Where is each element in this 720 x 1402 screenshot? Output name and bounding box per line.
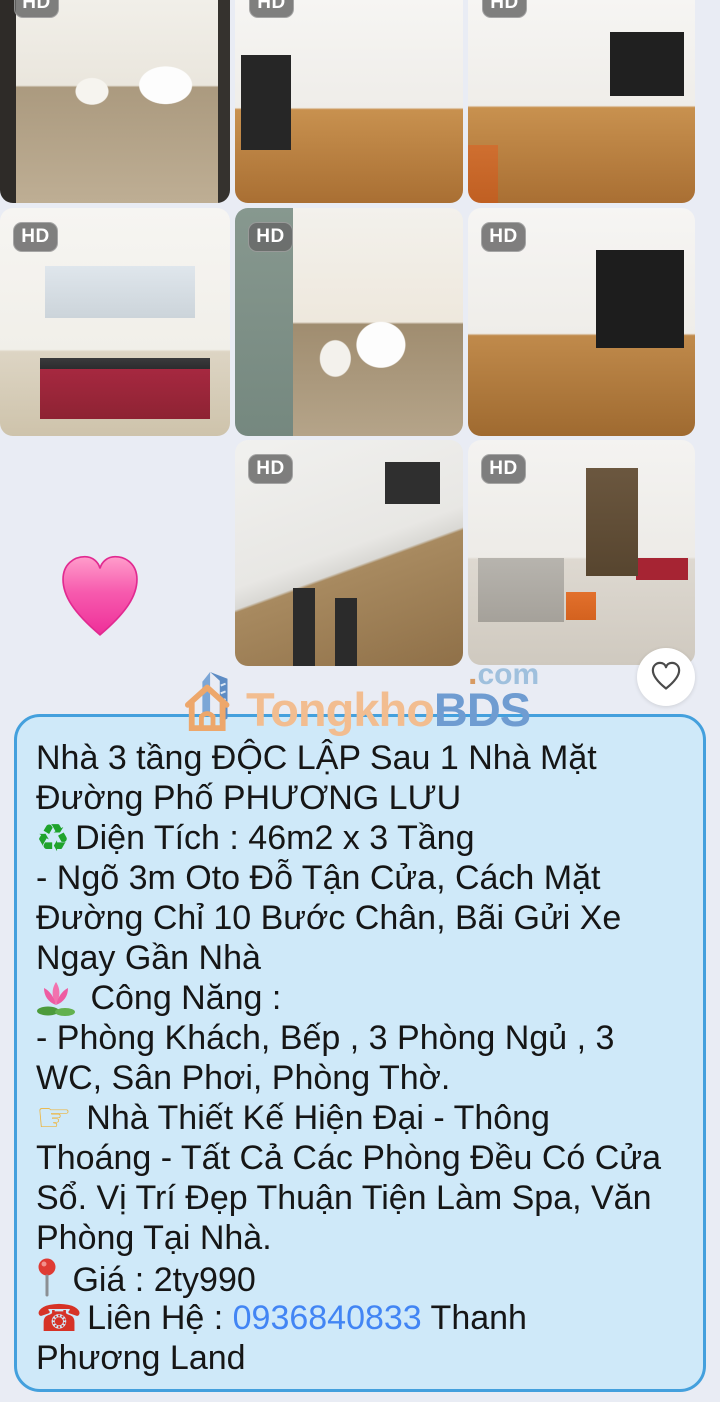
hd-badge: HD: [248, 454, 293, 484]
listing-line-2: Đường Phố PHƯƠNG LƯU: [36, 778, 695, 818]
listing-line-15: ☎Liên Hệ : 0936840833 Thanh: [36, 1298, 695, 1338]
logo-tongkho: Tongkho: [246, 683, 434, 736]
house-logo-icon: [184, 668, 242, 741]
text-segment: Sổ. Vị Trí Đẹp Thuận Tiện Làm Spa, Văn: [36, 1179, 652, 1217]
listing-line-12: Sổ. Vị Trí Đẹp Thuận Tiện Làm Spa, Văn: [36, 1178, 695, 1218]
logo-tld: .com: [468, 654, 539, 693]
logo-tld-com: com: [477, 658, 539, 691]
hd-badge: HD: [249, 0, 294, 18]
photo-living-room[interactable]: HD: [468, 440, 695, 665]
photo-bathroom-1[interactable]: HD: [0, 0, 230, 203]
text-segment: Nhà Thiết Kế Hiện Đại - Thông: [77, 1099, 550, 1137]
hd-badge: HD: [13, 222, 58, 252]
hd-badge: HD: [248, 222, 293, 252]
photo-bedroom-3[interactable]: HD: [468, 208, 695, 436]
photo-kitchen[interactable]: HD: [0, 208, 230, 436]
telephone-emoji: ☎: [36, 1299, 82, 1339]
point-emoji: ☞: [36, 1098, 72, 1138]
text-segment: Công Năng :: [81, 979, 281, 1017]
listing-line-6: Ngay Gần Nhà: [36, 938, 695, 978]
text-segment: Phương Land: [36, 1339, 246, 1377]
hd-badge: HD: [481, 454, 526, 484]
listing-line-10: ☞ Nhà Thiết Kế Hiện Đại - Thông: [36, 1098, 695, 1138]
text-segment: Phòng Tại Nhà.: [36, 1219, 272, 1257]
listing-line-9: WC, Sân Phơi, Phòng Thờ.: [36, 1058, 695, 1098]
listing-line-13: Phòng Tại Nhà.: [36, 1218, 695, 1258]
pink-heart-emoji: [58, 550, 142, 644]
text-segment: Đường Phố PHƯƠNG LƯU: [36, 779, 461, 817]
text-segment: WC, Sân Phơi, Phòng Thờ.: [36, 1059, 450, 1097]
photo-bathroom-2[interactable]: HD: [235, 208, 463, 436]
phone-number-link[interactable]: 0936840833: [233, 1299, 422, 1337]
listing-description-box: Nhà 3 tầng ĐỘC LẬP Sau 1 Nhà MặtĐường Ph…: [14, 714, 706, 1392]
listing-text: Nhà 3 tầng ĐỘC LẬP Sau 1 Nhà MặtĐường Ph…: [36, 738, 695, 1378]
listing-line-8: - Phòng Khách, Bếp , 3 Phòng Ngủ , 3: [36, 1018, 695, 1058]
text-segment: Thanh: [422, 1299, 527, 1337]
text-segment: Giá : 2ty990: [63, 1261, 256, 1299]
text-segment: Thoáng - Tất Cả Các Phòng Đều Có Cửa: [36, 1139, 661, 1177]
text-segment: Nhà 3 tầng ĐỘC LẬP Sau 1 Nhà Mặt: [36, 739, 597, 777]
hd-badge: HD: [482, 0, 527, 18]
photo-building-exterior[interactable]: HD: [235, 440, 463, 666]
text-segment: - Ngõ 3m Oto Đỗ Tận Cửa, Cách Mặt: [36, 859, 600, 897]
favorite-button[interactable]: [637, 648, 695, 706]
listing-line-7: Công Năng :: [36, 978, 695, 1018]
listing-line-4: - Ngõ 3m Oto Đỗ Tận Cửa, Cách Mặt: [36, 858, 695, 898]
listing-line-5: Đường Chỉ 10 Bước Chân, Bãi Gửi Xe: [36, 898, 695, 938]
listing-page: HD HD HD HD HD HD HD HD: [0, 0, 720, 1402]
text-segment: Diện Tích : 46m2 x 3 Tầng: [75, 819, 474, 857]
photo-bedroom-2[interactable]: HD: [468, 0, 695, 203]
listing-line-1: Nhà 3 tầng ĐỘC LẬP Sau 1 Nhà Mặt: [36, 738, 695, 778]
listing-line-3: ♻Diện Tích : 46m2 x 3 Tầng: [36, 818, 695, 858]
recycle-emoji: ♻: [36, 818, 70, 858]
text-segment: Đường Chỉ 10 Bước Chân, Bãi Gửi Xe: [36, 899, 621, 937]
hd-badge: HD: [481, 222, 526, 252]
text-segment: Liên Hệ :: [87, 1299, 233, 1337]
listing-line-11: Thoáng - Tất Cả Các Phòng Đều Có Cửa: [36, 1138, 695, 1178]
listing-line-16: Phương Land: [36, 1338, 695, 1378]
photo-bedroom-1[interactable]: HD: [235, 0, 463, 203]
text-segment: - Phòng Khách, Bếp , 3 Phòng Ngủ , 3: [36, 1019, 614, 1057]
listing-line-14: Giá : 2ty990: [36, 1258, 695, 1298]
text-segment: Ngay Gần Nhà: [36, 939, 261, 977]
tongkhobds-logo: TongkhoBDS .com: [184, 660, 556, 744]
heart-outline-icon: [650, 661, 682, 694]
hd-badge: HD: [14, 0, 59, 18]
